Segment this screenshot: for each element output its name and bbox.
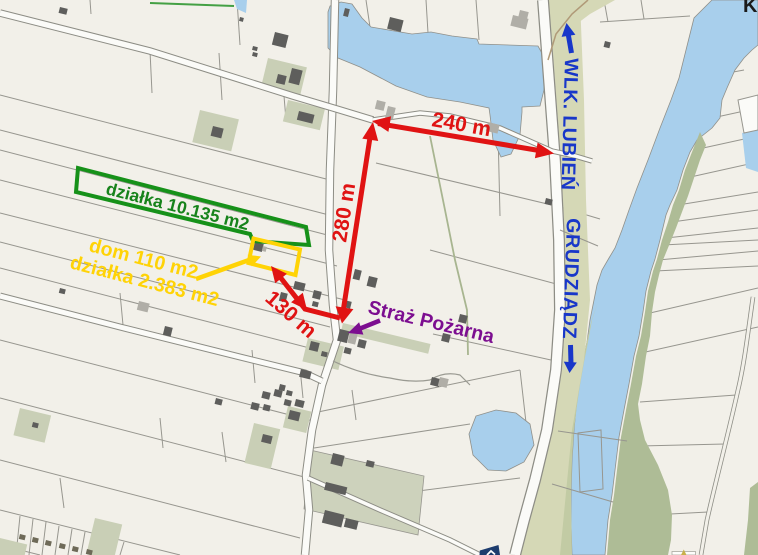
svg-text:KU: KU — [743, 0, 758, 17]
svg-text:GRUDZIĄDZ: GRUDZIĄDZ — [558, 218, 584, 340]
svg-text:WLK. LUBIEŃ: WLK. LUBIEŃ — [557, 58, 583, 191]
